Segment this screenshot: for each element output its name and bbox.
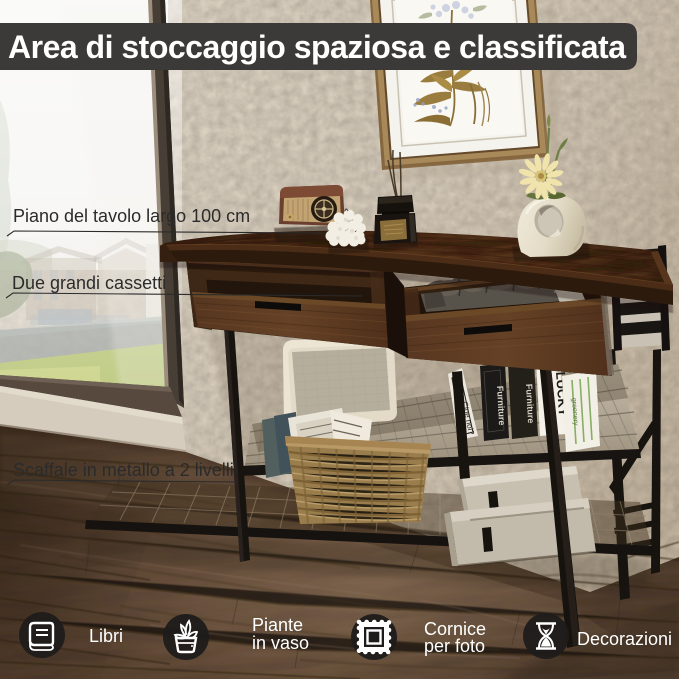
- svg-text:Furniture: Furniture: [524, 384, 536, 424]
- svg-text:per foto: per foto: [424, 636, 485, 656]
- svg-text:Libri: Libri: [89, 626, 123, 646]
- svg-text:in vaso: in vaso: [252, 633, 309, 653]
- svg-text:Decorazioni: Decorazioni: [577, 629, 672, 649]
- svg-text:Piante: Piante: [252, 615, 303, 635]
- svg-text:Piano del tavolo largo 100 cm: Piano del tavolo largo 100 cm: [13, 206, 250, 226]
- svg-text:Area di stoccaggio spaziosa e: Area di stoccaggio spaziosa e classifica…: [8, 29, 626, 65]
- svg-text:Furniture: Furniture: [495, 386, 507, 426]
- svg-text:Due grandi cassetti: Due grandi cassetti: [12, 273, 166, 293]
- svg-text:Scaffale in metallo a 2 livell: Scaffale in metallo a 2 livelli: [13, 460, 234, 480]
